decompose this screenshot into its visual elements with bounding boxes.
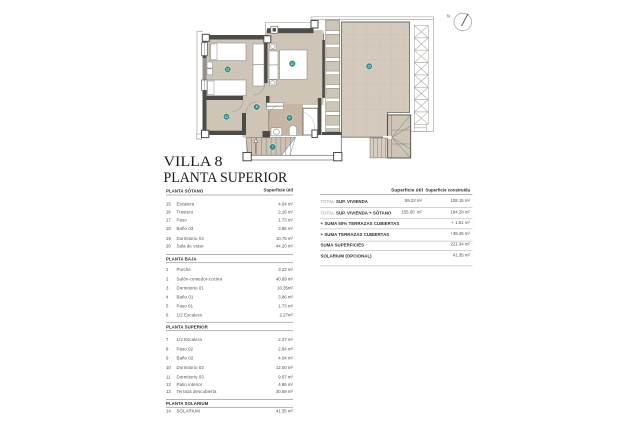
svg-text:PLANTA SUPERIOR: PLANTA SUPERIOR (166, 324, 209, 329)
svg-text:+ SUMA 50% TERRAZAS CUBIERTAS: + SUMA 50% TERRAZAS CUBIERTAS (321, 221, 400, 226)
svg-text:10.75 m²: 10.75 m² (276, 236, 294, 241)
svg-text:2.27m²: 2.27m² (279, 312, 293, 317)
svg-text:1/2 Escalera: 1/2 Escalera (177, 312, 203, 317)
svg-text:SOLARIUM (OPCIONAL): SOLARIUM (OPCIONAL) (321, 254, 373, 259)
svg-text:12: 12 (166, 382, 171, 387)
svg-text:TOTAL SUP. VIVIENDA + SÓTANO: TOTAL SUP. VIVIENDA + SÓTANO (321, 211, 393, 216)
svg-text:+ SUMA TERRAZAS CUBIERTAS: + SUMA TERRAZAS CUBIERTAS (321, 232, 390, 237)
svg-text:N: N (447, 14, 450, 19)
svg-text:Patio interior: Patio interior (177, 382, 203, 387)
svg-text:Superficie construida: Superficie construida (426, 188, 471, 193)
svg-text:4.86 m²: 4.86 m² (278, 382, 293, 387)
svg-text:3.22 m²: 3.22 m² (278, 267, 293, 272)
svg-text:3.86 m²: 3.86 m² (278, 226, 293, 231)
svg-text:14: 14 (166, 409, 171, 414)
svg-text:44.20 m²: 44.20 m² (276, 244, 294, 249)
svg-text:7: 7 (272, 145, 274, 149)
svg-text:16: 16 (166, 210, 171, 215)
svg-text:Paso 01: Paso 01 (177, 304, 194, 309)
svg-text:SUMA SUPERFICIES: SUMA SUPERFICIES (321, 242, 365, 247)
svg-text:Baño 01: Baño 01 (177, 295, 194, 300)
svg-text:Paso: Paso (177, 218, 188, 223)
svg-text:155.00 m²: 155.00 m² (401, 210, 422, 215)
svg-text:9: 9 (289, 116, 291, 120)
svg-text:Superficie útil: Superficie útil (391, 188, 423, 193)
svg-text:8: 8 (256, 105, 258, 109)
svg-text:184.28 m²: 184.28 m² (450, 210, 470, 215)
svg-text:30.59 m²: 30.59 m² (276, 389, 294, 394)
svg-text:12.00 m²: 12.00 m² (276, 365, 294, 370)
svg-text:4.04 m²: 4.04 m² (278, 356, 293, 361)
svg-text:Sala de estar: Sala de estar (177, 244, 204, 249)
svg-text:PLANTA SUPERIOR: PLANTA SUPERIOR (164, 170, 288, 186)
svg-text:Dormitorio 03: Dormitorio 03 (177, 374, 205, 379)
svg-text:3.86 m²: 3.86 m² (278, 295, 293, 300)
svg-text:PLANTA SÓTANO: PLANTA SÓTANO (166, 189, 204, 194)
svg-text:1/2 Escalera: 1/2 Escalera (177, 337, 203, 342)
svg-text:19: 19 (166, 236, 171, 241)
svg-text:Terraza descubierta: Terraza descubierta (177, 389, 218, 394)
svg-text:10: 10 (166, 365, 171, 370)
svg-text:12: 12 (225, 115, 229, 119)
svg-text:+35.45 m²: +35.45 m² (450, 231, 470, 236)
svg-text:Dormitorio 02: Dormitorio 02 (177, 365, 205, 370)
svg-text:20: 20 (166, 244, 171, 249)
svg-text:41.35 m²: 41.35 m² (453, 253, 471, 258)
svg-text:+ 1.61 m²: + 1.61 m² (452, 220, 471, 225)
svg-text:10: 10 (290, 62, 294, 66)
svg-text:9.07 m²: 9.07 m² (278, 374, 293, 379)
svg-text:10.35m²: 10.35m² (277, 286, 293, 291)
svg-text:Trastero: Trastero (177, 210, 194, 215)
svg-text:Baño 03: Baño 03 (177, 226, 194, 231)
svg-text:Escalera: Escalera (177, 202, 195, 207)
svg-text:18: 18 (166, 226, 171, 231)
svg-text:4.64 m²: 4.64 m² (278, 202, 293, 207)
svg-text:TOTAL SUP. VIVIENDA: TOTAL SUP. VIVIENDA (321, 199, 369, 204)
svg-text:11: 11 (226, 68, 230, 72)
svg-text:VILLA 8: VILLA 8 (164, 154, 223, 170)
svg-text:Baño 02: Baño 02 (177, 356, 194, 361)
svg-text:Dormitorio 01: Dormitorio 01 (177, 286, 205, 291)
svg-text:PLANTA BAJA: PLANTA BAJA (166, 256, 198, 261)
svg-text:2.16 m²: 2.16 m² (278, 210, 293, 215)
svg-text:2.84 m²: 2.84 m² (278, 346, 293, 351)
svg-text:89.22 m²: 89.22 m² (405, 198, 423, 203)
svg-text:11: 11 (166, 374, 171, 379)
svg-text:1.73 m²: 1.73 m² (278, 304, 293, 309)
svg-text:41.35 m²: 41.35 m² (276, 409, 294, 414)
svg-text:Dormitorio 04: Dormitorio 04 (177, 236, 205, 241)
svg-text:13: 13 (367, 65, 371, 69)
svg-text:SOLARIUM: SOLARIUM (177, 409, 201, 414)
svg-text:1.73 m²: 1.73 m² (278, 218, 293, 223)
svg-text:Paso 02: Paso 02 (177, 346, 194, 351)
svg-text:Salón-comedor-cocina: Salón-comedor-cocina (177, 276, 223, 281)
svg-text:15: 15 (166, 202, 171, 207)
svg-text:108.15 m²: 108.15 m² (450, 198, 470, 203)
svg-text:17: 17 (166, 218, 171, 223)
svg-text:13: 13 (166, 389, 171, 394)
svg-text:221.34 m²: 221.34 m² (450, 241, 470, 246)
svg-text:2.27 m²: 2.27 m² (278, 337, 293, 342)
svg-text:Superficie útil: Superficie útil (264, 188, 293, 193)
svg-text:40.89 m²: 40.89 m² (276, 276, 294, 281)
svg-text:PLANTA SOLARIUM: PLANTA SOLARIUM (166, 401, 209, 406)
svg-text:Porche: Porche (177, 267, 192, 272)
